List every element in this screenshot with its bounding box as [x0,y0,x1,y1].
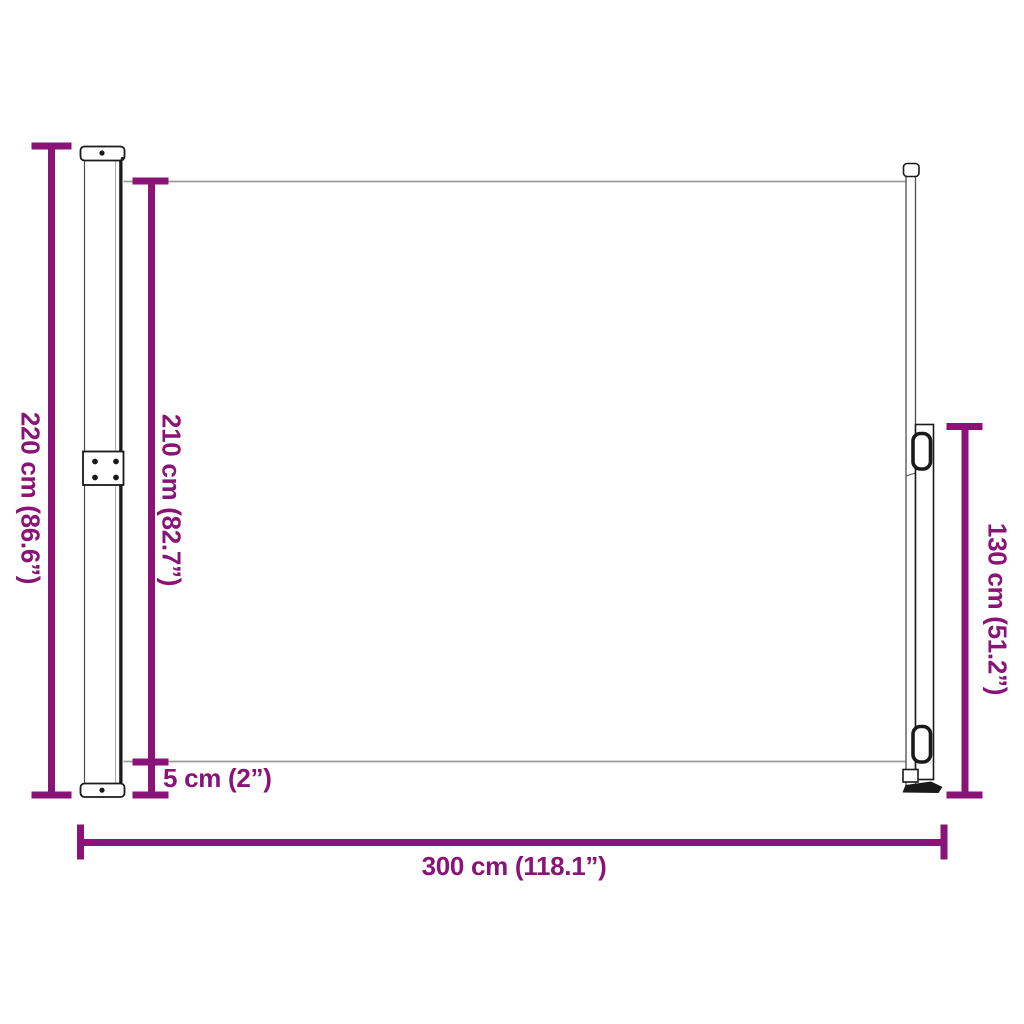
dim-pole-height-line [962,423,969,796]
top-cap-screw-dot [99,150,104,155]
dim-total-width-tick-right [941,825,948,860]
top-cap-notch-dot [121,157,125,161]
bracket-screw-dot [113,475,119,481]
dim-fabric-height-line [148,178,155,766]
dim-total-width-line [77,839,945,846]
dimension-label-total-width: 300 cm (118.1”) [422,853,607,880]
bracket-screw-dot [113,459,119,465]
bottom-cap-screw-dot [99,788,104,793]
pole-top-cap [904,164,920,177]
cassette-post [81,147,125,798]
dimension-label-total-height: 220 cm (86.6”) [16,412,43,584]
dimension-label-pole-height: 130 cm (51.2”) [983,523,1010,695]
bracket-screw-dot [92,459,98,465]
pole-handle-bottom [913,727,931,763]
front-pole [903,164,943,794]
dim-pole-height-tick-bottom [947,792,983,799]
pole-handle-top [913,434,931,470]
dimension-diagram: 220 cm (86.6”) 210 cm (82.7”) 130 cm (51… [0,0,1024,1024]
dim-total-height-tick-bottom [32,792,72,799]
pole-collar [903,770,918,783]
dimension-label-bottom-gap: 5 cm (2”) [163,765,272,792]
bracket-screw-dot [92,475,98,481]
dimension-label-fabric-height: 210 cm (82.7”) [157,414,184,586]
fabric-edges [124,182,906,762]
pole-body [906,176,916,786]
dim-total-height-line [48,143,55,796]
